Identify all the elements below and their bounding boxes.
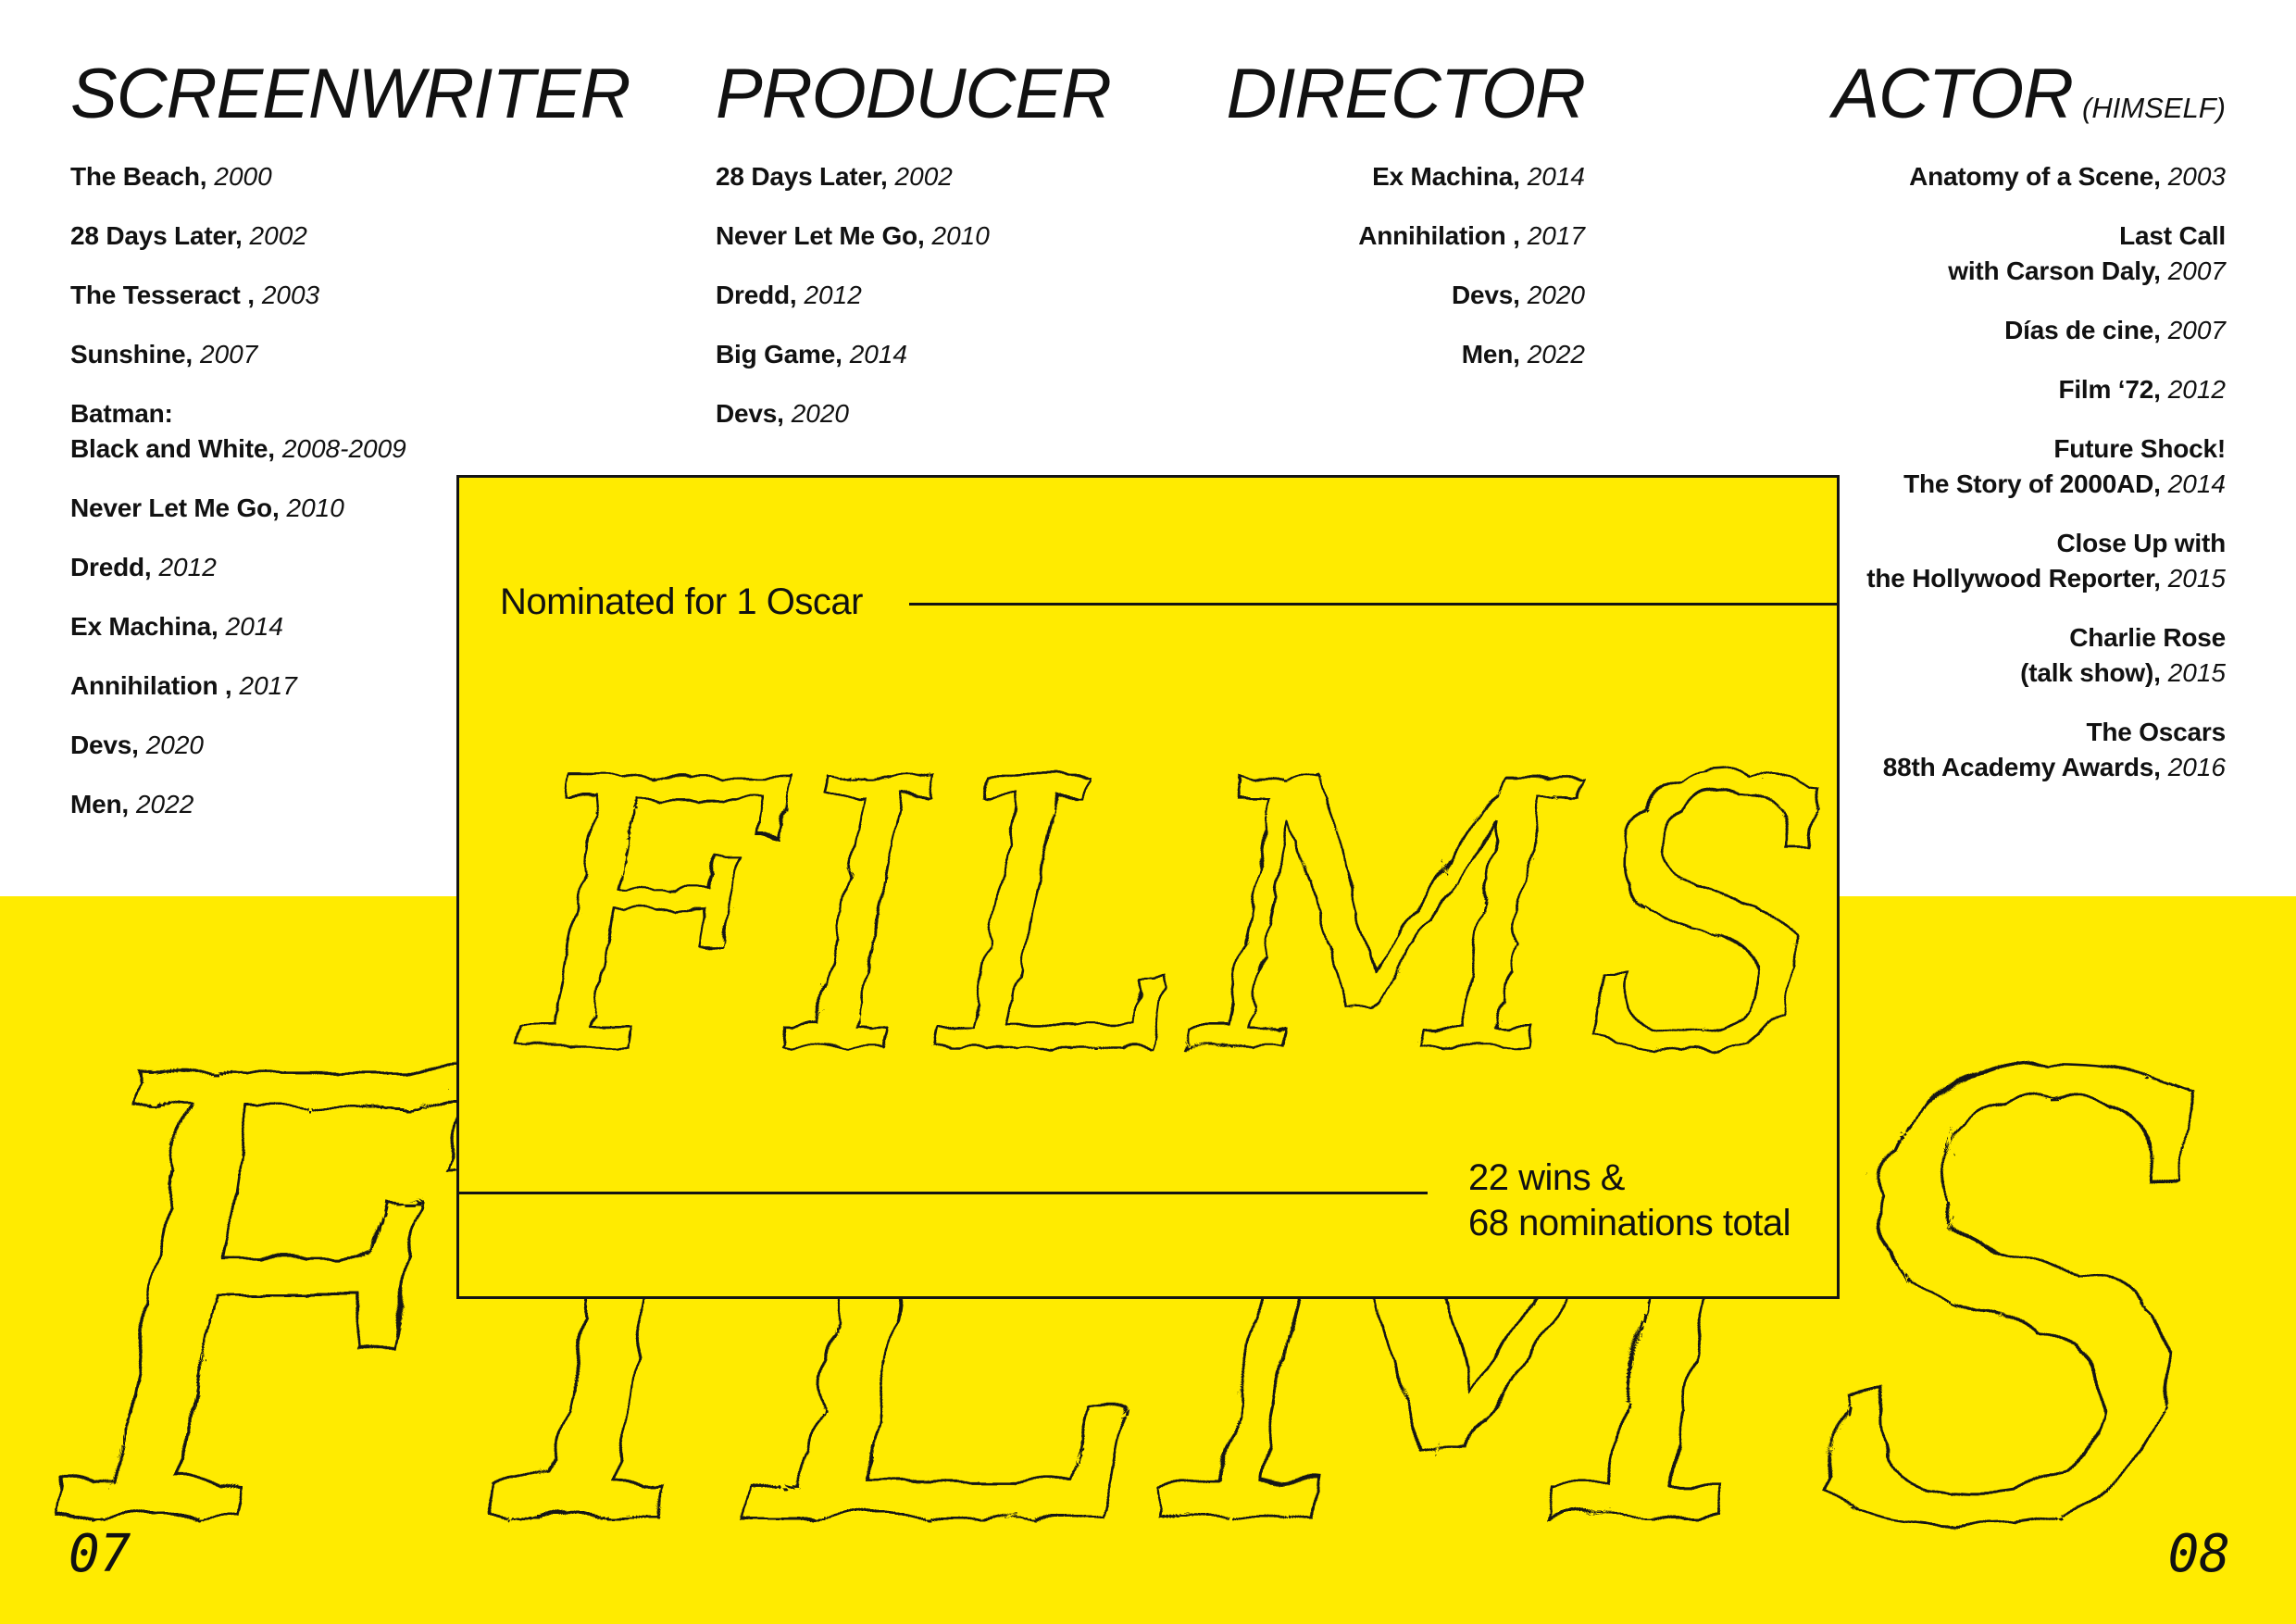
film-entry-line: Never Let Me Go,2010 xyxy=(716,219,1111,254)
film-year: 2012 xyxy=(804,281,861,309)
film-entry-line: (talk show),2015 xyxy=(1832,656,2226,691)
film-entry: Big Game,2014 xyxy=(716,337,1111,372)
column-title: PRODUCER xyxy=(716,59,1111,130)
wins-line-1: 22 wins & xyxy=(1468,1156,1791,1201)
film-entry: Días de cine,2007 xyxy=(1832,313,2226,348)
film-title: Ex Machina, xyxy=(70,612,218,641)
film-title: Never Let Me Go, xyxy=(716,221,925,250)
wins-line-2: 68 nominations total xyxy=(1468,1201,1791,1246)
film-title: the Hollywood Reporter, xyxy=(1866,564,2160,593)
films-word-panel: FILMS xyxy=(511,700,1831,1131)
film-title: The Oscars xyxy=(2086,718,2226,746)
film-title: Días de cine, xyxy=(2004,316,2161,344)
film-year: 2014 xyxy=(1528,162,1585,191)
film-title: Anatomy of a Scene, xyxy=(1909,162,2161,191)
film-title: Devs, xyxy=(716,399,784,428)
film-year: 2015 xyxy=(2168,564,2226,593)
film-year: 2015 xyxy=(2168,658,2226,687)
film-entry-line: Dredd,2012 xyxy=(716,278,1111,313)
film-year: 2016 xyxy=(2168,753,2226,781)
film-entry-line: Close Up with xyxy=(1832,526,2226,561)
film-entry: Devs,2020 xyxy=(716,396,1111,431)
film-entry: Annihilation ,2017 xyxy=(1226,219,1585,254)
column-entries: Ex Machina,2014Annihilation ,2017Devs,20… xyxy=(1226,159,1585,372)
film-title: Devs, xyxy=(70,731,139,759)
column-title: DIRECTOR xyxy=(1226,59,1585,130)
film-year: 2010 xyxy=(287,493,344,522)
column-director: DIRECTOREx Machina,2014Annihilation ,201… xyxy=(1226,59,1585,396)
film-title: Last Call xyxy=(2119,221,2226,250)
column-actor: ACTOR(HIMSELF)Anatomy of a Scene,2003Las… xyxy=(1832,59,2226,809)
film-entry: Film ‘72,2012 xyxy=(1832,372,2226,407)
film-title: Men, xyxy=(70,790,129,818)
films-outline-panel: FILMS xyxy=(459,746,1840,1080)
film-year: 2012 xyxy=(158,553,216,581)
film-entry-line: Future Shock! xyxy=(1832,431,2226,467)
film-title: Batman: xyxy=(70,399,173,428)
film-title: Close Up with xyxy=(2056,529,2226,557)
film-entry-line: Charlie Rose xyxy=(1832,620,2226,656)
film-title: The Beach, xyxy=(70,162,206,191)
film-entry: The Oscars88th Academy Awards,2016 xyxy=(1832,715,2226,785)
film-entry: Anatomy of a Scene,2003 xyxy=(1832,159,2226,194)
film-year: 2003 xyxy=(2168,162,2226,191)
film-entry-line: Anatomy of a Scene,2003 xyxy=(1832,159,2226,194)
film-entry-line: Film ‘72,2012 xyxy=(1832,372,2226,407)
film-entry: 28 Days Later,2002 xyxy=(716,159,1111,194)
film-entry-line: 28 Days Later,2002 xyxy=(716,159,1111,194)
film-entry-line: Batman: xyxy=(70,396,630,431)
film-entry: Dredd,2012 xyxy=(716,278,1111,313)
film-entry: 28 Days Later,2002 xyxy=(70,219,630,254)
film-title: Film ‘72, xyxy=(2058,375,2160,404)
film-year: 2014 xyxy=(850,340,907,369)
film-year: 2002 xyxy=(250,221,307,250)
film-title: Men, xyxy=(1462,340,1520,369)
film-title: Big Game, xyxy=(716,340,842,369)
film-entry-line: Black and White,2008-2009 xyxy=(70,431,630,467)
column-entries: Anatomy of a Scene,2003Last Callwith Car… xyxy=(1832,159,2226,785)
film-entry-line: the Hollywood Reporter,2015 xyxy=(1832,561,2226,596)
film-year: 2007 xyxy=(2168,256,2226,285)
nominated-label: Nominated for 1 Oscar xyxy=(500,581,863,623)
film-title: Dredd, xyxy=(716,281,796,309)
film-entry: Never Let Me Go,2010 xyxy=(716,219,1111,254)
film-title: 28 Days Later, xyxy=(70,221,243,250)
column-producer: PRODUCER28 Days Later,2002Never Let Me G… xyxy=(716,59,1111,456)
film-title: with Carson Daly, xyxy=(1948,256,2160,285)
film-entry-line: The Tesseract ,2003 xyxy=(70,278,630,313)
film-entry: Batman:Black and White,2008-2009 xyxy=(70,396,630,467)
film-entry: Close Up withthe Hollywood Reporter,2015 xyxy=(1832,526,2226,596)
film-entry-line: Sunshine,2007 xyxy=(70,337,630,372)
film-entry: The Tesseract ,2003 xyxy=(70,278,630,313)
column-title: ACTOR(HIMSELF) xyxy=(1832,59,2226,130)
film-entry-line: Big Game,2014 xyxy=(716,337,1111,372)
film-title: Black and White, xyxy=(70,434,275,463)
film-year: 2014 xyxy=(226,612,283,641)
film-title: The Tesseract , xyxy=(70,281,255,309)
film-year: 2020 xyxy=(792,399,849,428)
film-entry-line: Devs,2020 xyxy=(716,396,1111,431)
film-year: 2000 xyxy=(214,162,271,191)
column-entries: 28 Days Later,2002Never Let Me Go,2010Dr… xyxy=(716,159,1111,431)
film-title: Never Let Me Go, xyxy=(70,493,280,522)
film-title: 88th Academy Awards, xyxy=(1883,753,2161,781)
film-entry-line: Ex Machina,2014 xyxy=(1226,159,1585,194)
film-entry: Last Callwith Carson Daly,2007 xyxy=(1832,219,2226,289)
oscar-panel: Nominated for 1 Oscar FILMS 22 wins & 68… xyxy=(456,475,1840,1299)
film-year: 2022 xyxy=(136,790,193,818)
film-entry-line: The Oscars xyxy=(1832,715,2226,750)
film-title: Annihilation , xyxy=(1358,221,1520,250)
film-year: 2022 xyxy=(1528,340,1585,369)
film-year: 2012 xyxy=(2168,375,2226,404)
nominated-rule xyxy=(909,603,1837,606)
film-entry: Devs,2020 xyxy=(1226,278,1585,313)
film-entry: Men,2022 xyxy=(1226,337,1585,372)
film-title: Annihilation , xyxy=(70,671,232,700)
film-entry: Future Shock!The Story of 2000AD,2014 xyxy=(1832,431,2226,502)
film-entry-line: with Carson Daly,2007 xyxy=(1832,254,2226,289)
film-title: 28 Days Later, xyxy=(716,162,888,191)
page-number-left: 07 xyxy=(69,1524,131,1584)
film-entry-line: 28 Days Later,2002 xyxy=(70,219,630,254)
film-title: Sunshine, xyxy=(70,340,193,369)
film-title: Future Shock! xyxy=(2053,434,2226,463)
film-entry: The Beach,2000 xyxy=(70,159,630,194)
film-title: Ex Machina, xyxy=(1372,162,1520,191)
film-year: 2010 xyxy=(932,221,990,250)
page: FILMS SCREENWRITERThe Beach,200028 Days … xyxy=(0,0,2296,1624)
film-year: 2008-2009 xyxy=(282,434,406,463)
film-entry-line: Devs,2020 xyxy=(1226,278,1585,313)
film-year: 2007 xyxy=(200,340,257,369)
film-year: 2002 xyxy=(895,162,953,191)
film-entry-line: The Story of 2000AD,2014 xyxy=(1832,467,2226,502)
film-year: 2014 xyxy=(2168,469,2226,498)
film-entry-line: Men,2022 xyxy=(1226,337,1585,372)
wins-summary: 22 wins & 68 nominations total xyxy=(1468,1156,1791,1246)
film-title: Devs, xyxy=(1452,281,1520,309)
column-title: SCREENWRITER xyxy=(70,59,630,130)
film-entry: Sunshine,2007 xyxy=(70,337,630,372)
film-title: Charlie Rose xyxy=(2069,623,2226,652)
wins-rule xyxy=(459,1192,1428,1194)
film-year: 2017 xyxy=(240,671,297,700)
column-title-suffix: (HIMSELF) xyxy=(2082,92,2226,124)
page-number-right: 08 xyxy=(2168,1524,2230,1584)
film-year: 2003 xyxy=(262,281,319,309)
film-title: (talk show), xyxy=(2020,658,2161,687)
film-entry-line: Días de cine,2007 xyxy=(1832,313,2226,348)
film-entry-line: Annihilation ,2017 xyxy=(1226,219,1585,254)
film-entry-line: The Beach,2000 xyxy=(70,159,630,194)
film-entry: Charlie Rose(talk show),2015 xyxy=(1832,620,2226,691)
film-entry-line: 88th Academy Awards,2016 xyxy=(1832,750,2226,785)
film-year: 2020 xyxy=(146,731,204,759)
film-year: 2007 xyxy=(2168,316,2226,344)
film-entry-line: Last Call xyxy=(1832,219,2226,254)
film-year: 2017 xyxy=(1528,221,1585,250)
film-title: The Story of 2000AD, xyxy=(1903,469,2161,498)
film-title: Dredd, xyxy=(70,553,151,581)
film-entry: Ex Machina,2014 xyxy=(1226,159,1585,194)
film-year: 2020 xyxy=(1528,281,1585,309)
